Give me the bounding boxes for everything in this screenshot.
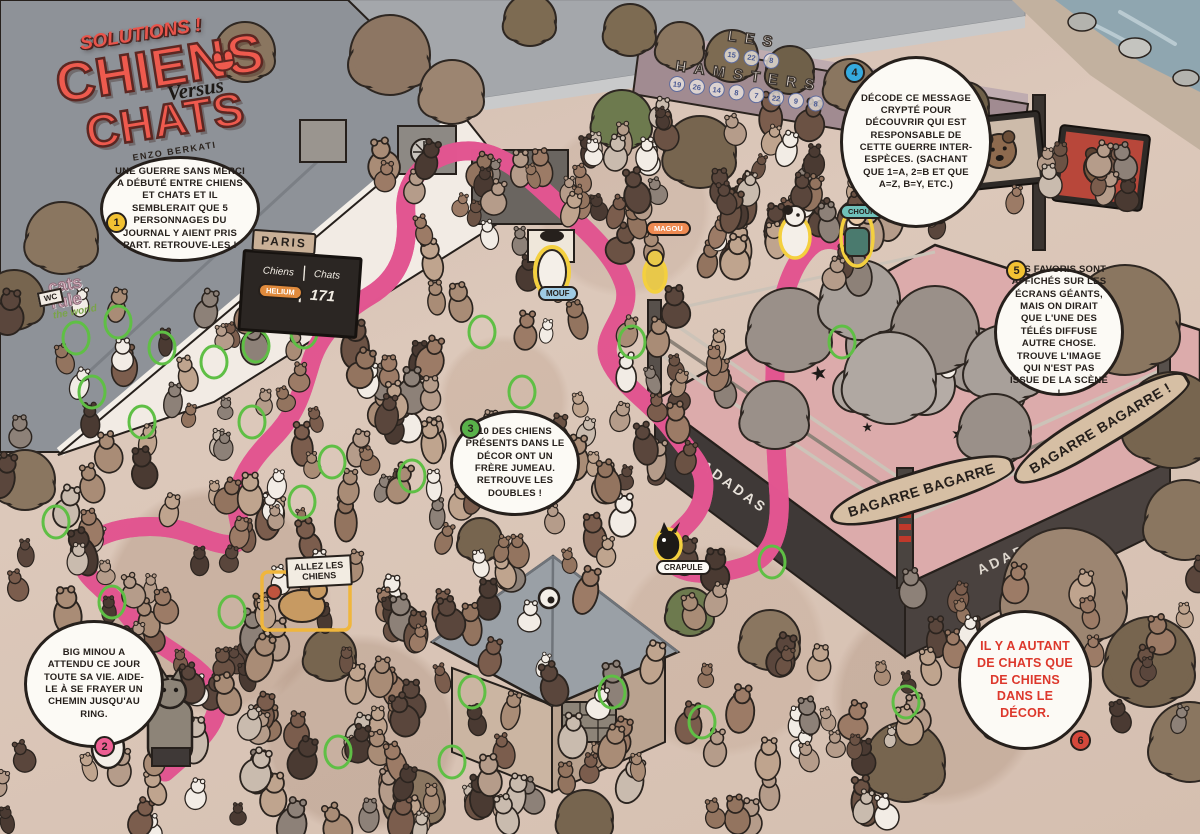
graffiti-number: 26 — [688, 78, 706, 96]
character-white-dog — [780, 205, 810, 258]
twin-highlight — [219, 596, 245, 628]
crowd-animal — [754, 737, 782, 781]
crowd-animal — [513, 310, 539, 351]
crowd-animal — [445, 281, 475, 324]
crowd-animal — [1175, 602, 1194, 629]
crowd-animal — [266, 468, 289, 500]
crowd-animal — [190, 546, 208, 576]
crowd-animal — [0, 805, 16, 834]
crowd-animal — [358, 798, 380, 833]
score-col-chiens: Chiens — [262, 265, 294, 278]
crowd-animal — [659, 284, 691, 329]
graffiti-number: 8 — [762, 51, 780, 69]
crowd-animal — [127, 445, 159, 491]
label-mouf: MOUF — [538, 286, 578, 301]
graffiti-number: 7 — [747, 86, 765, 104]
crowd-animal — [183, 777, 210, 812]
crowd-animal — [538, 318, 555, 344]
graffiti-number: 14 — [708, 81, 726, 99]
score-divider: | — [301, 264, 306, 282]
crowd-animal — [315, 799, 357, 834]
graffiti-number: 22 — [767, 89, 785, 107]
tree — [1148, 702, 1200, 782]
crowd-animal — [7, 737, 39, 775]
tree — [503, 0, 556, 46]
tree — [418, 60, 484, 124]
label-crapule: CRAPULE — [656, 560, 711, 575]
crowd-animal — [426, 469, 442, 501]
crowd-animal — [431, 662, 453, 695]
graffiti-number: 9 — [787, 92, 805, 110]
tree — [556, 790, 613, 834]
clue-bubble-2: BIG MINOU A ATTENDU CE JOUR TOUTE SA VIE… — [24, 620, 164, 748]
clue-badge-1: 1 — [106, 212, 127, 233]
score-chats: 171 — [309, 287, 335, 306]
character-crapule — [655, 522, 681, 561]
tree — [603, 4, 656, 56]
clue-badge-3: 3 — [460, 418, 481, 439]
crowd-animal — [697, 663, 715, 689]
clue-bubble-4: DÉCODE CE MESSAGE CRYPTÉ POUR DÉCOUVRIR … — [840, 56, 992, 228]
clue-badge-2: 2 — [94, 736, 115, 757]
twin-highlight — [469, 316, 495, 348]
label-helium: HELIUM — [258, 282, 304, 300]
tree — [739, 381, 809, 449]
crowd-animal — [701, 796, 727, 830]
twin-highlight — [239, 406, 265, 438]
star-icon: ★ — [861, 419, 874, 435]
crowd-animal — [421, 376, 441, 411]
crowd-animal — [817, 705, 838, 732]
crowd-animal — [217, 397, 234, 420]
graffiti-number: 15 — [723, 46, 741, 64]
tree — [348, 15, 430, 95]
crowd-animal — [706, 345, 721, 375]
clue-badge-5: 5 — [1006, 260, 1027, 281]
crowd-animal — [16, 538, 35, 567]
twin-highlight — [509, 376, 535, 408]
crowd-animal — [724, 683, 758, 734]
crowd-animal — [0, 768, 12, 798]
allez-les-chiens-sign: ALLEZ LES CHIENS — [285, 554, 353, 588]
graffiti-number: 8 — [728, 83, 746, 101]
character-yellow-cat — [644, 250, 666, 292]
graffiti-number: 19 — [668, 75, 686, 93]
clue-bubble-5: LES FAVORIS SONT AFFICHÉS SUR LES ÉCRANS… — [994, 268, 1124, 396]
puzzle-page: ADADAS ADADAS ★ ★ ★ — [0, 0, 1200, 834]
crowd-animal — [3, 567, 31, 603]
crowd-animal — [230, 802, 247, 825]
crowd-animal — [569, 391, 590, 419]
crowd-animal — [607, 400, 634, 434]
crowd-animal — [702, 727, 730, 768]
crowd-animal — [339, 647, 353, 674]
twin-highlight — [319, 446, 345, 478]
crowd-animal — [1105, 698, 1134, 735]
answer-bubble-6: IL Y A AUTANT DE CHATS QUE DE CHIENS DAN… — [958, 610, 1092, 750]
crowd-animal — [564, 299, 591, 342]
label-magou: MAGOU — [646, 221, 691, 236]
tree — [24, 202, 98, 274]
graffiti-number: 8 — [807, 94, 825, 112]
score-col-chats: Chats — [314, 268, 341, 281]
clue-badge-4: 4 — [844, 62, 865, 83]
crowd-animal — [426, 280, 446, 316]
paris-sign: PARIS — [251, 229, 316, 255]
graffiti-number: 22 — [742, 49, 760, 67]
crowd-animal — [1004, 184, 1026, 215]
crowd-animal — [872, 660, 891, 686]
clue-badge-6: 6 — [1070, 730, 1091, 751]
crowd-animal — [255, 388, 275, 417]
clue-bubble-1: UNE GUERRE SANS MERCI A DÉBUTÉ ENTRE CHI… — [100, 156, 260, 262]
crowd-animal — [806, 643, 833, 682]
crowd-animal — [512, 226, 529, 255]
